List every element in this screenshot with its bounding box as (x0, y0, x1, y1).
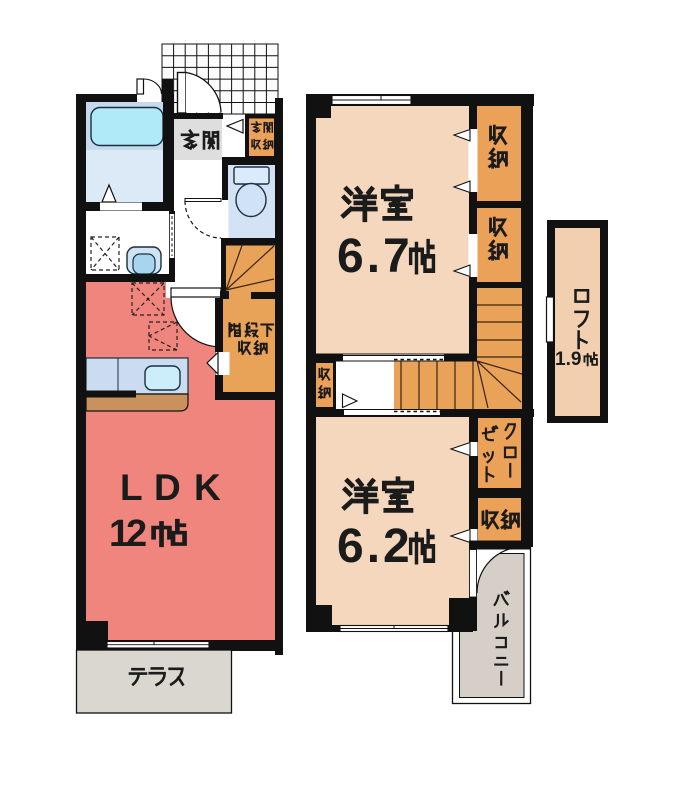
svg-text:K: K (194, 467, 221, 508)
svg-text:1.9: 1.9 (555, 349, 581, 370)
svg-text:6.7: 6.7 (337, 230, 413, 283)
svg-text:2: 2 (126, 513, 147, 555)
svg-text:D: D (154, 467, 181, 508)
svg-text:6.2: 6.2 (337, 520, 413, 573)
svg-text:L: L (120, 467, 143, 508)
